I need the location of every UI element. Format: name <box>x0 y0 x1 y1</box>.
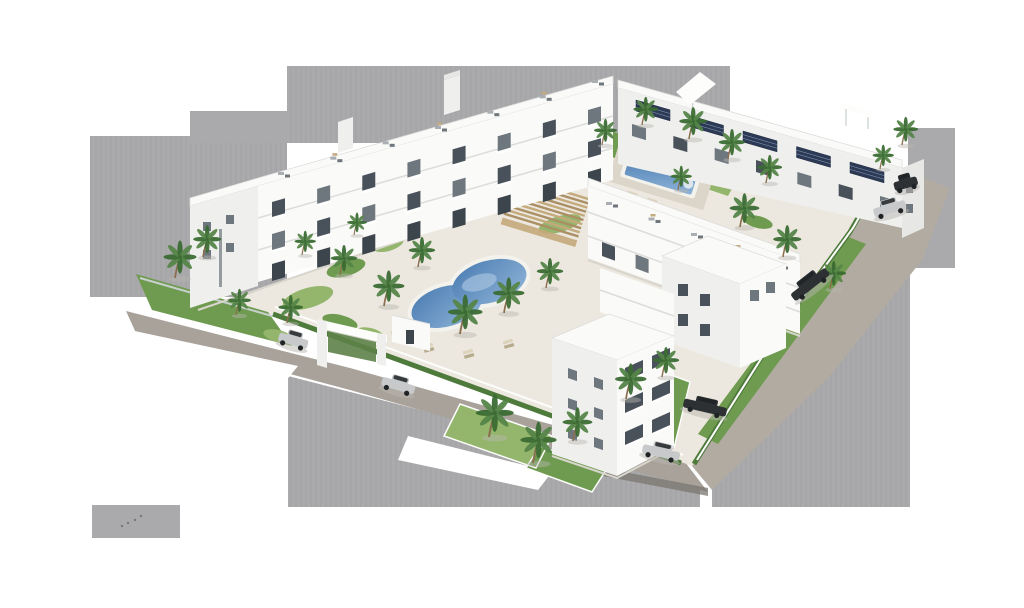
palm-shadow <box>283 322 300 327</box>
roof-furniture <box>332 153 337 156</box>
roof-furniture <box>285 175 290 178</box>
roof-furniture <box>613 205 618 208</box>
palm-shadow <box>541 287 559 292</box>
palm-crown <box>178 255 182 259</box>
roof-furniture <box>337 159 342 162</box>
facade <box>444 75 460 115</box>
palm-shadow <box>482 435 507 442</box>
roof-furniture <box>606 202 612 205</box>
palm-crown <box>604 129 607 132</box>
window <box>766 282 775 293</box>
window <box>226 243 234 252</box>
palm-shadow <box>378 304 399 310</box>
palm-shadow <box>350 234 363 238</box>
facade <box>317 319 327 368</box>
roof-furniture <box>691 233 697 236</box>
palm-shadow <box>674 189 688 193</box>
roof-furniture <box>435 126 441 129</box>
roof-furniture <box>330 157 336 160</box>
palm-crown <box>343 257 346 260</box>
palm-shadow <box>413 266 431 271</box>
palm-crown <box>904 128 907 131</box>
palm-crown <box>421 249 424 252</box>
palm-crown <box>768 166 771 169</box>
palm-crown <box>206 238 209 241</box>
palm-shadow <box>454 332 477 338</box>
palm-shadow <box>898 144 915 149</box>
roof-furniture <box>540 95 546 98</box>
palm-shadow <box>598 144 613 148</box>
facade <box>552 338 617 476</box>
palm-crown <box>238 299 241 302</box>
palm-shadow <box>762 182 779 187</box>
facade <box>902 159 924 238</box>
gray-patch-bottom-left-small <box>92 505 180 538</box>
window <box>700 324 710 336</box>
palm-crown <box>743 206 746 209</box>
palm-crown <box>537 438 541 442</box>
roof-furniture <box>278 172 284 175</box>
tiny-mark <box>127 522 129 524</box>
palm-crown <box>644 108 647 111</box>
palm-crown <box>493 411 497 415</box>
palm-shadow <box>684 137 703 142</box>
palm-shadow <box>657 376 675 381</box>
palm-shadow <box>723 158 741 163</box>
facade <box>377 333 386 366</box>
roof-furniture <box>437 123 442 126</box>
palm-shadow <box>169 276 191 282</box>
window <box>678 284 688 296</box>
tiny-mark <box>121 525 123 527</box>
palm-shadow <box>198 255 217 260</box>
roof-furniture <box>592 80 598 83</box>
roof-furniture <box>494 113 499 116</box>
palm-shadow <box>778 255 797 260</box>
palm-shadow <box>498 311 519 317</box>
palm-shadow <box>298 254 312 258</box>
facade <box>338 117 353 153</box>
roof-furniture <box>651 214 656 217</box>
roof-furniture <box>698 236 703 239</box>
palm-crown <box>289 306 292 309</box>
palm-shadow <box>876 168 890 172</box>
tiny-mark <box>134 519 136 521</box>
palm-crown <box>387 284 390 287</box>
roof-furniture <box>542 92 547 95</box>
gray-patch-top-left-strip <box>190 111 287 143</box>
roof-furniture <box>547 98 552 101</box>
window <box>700 294 710 306</box>
palm-crown <box>507 291 510 294</box>
palm-shadow <box>735 225 755 230</box>
property-render-figure <box>40 16 1024 592</box>
window <box>226 215 234 224</box>
roof-furniture <box>649 218 655 221</box>
roof-furniture <box>390 144 395 147</box>
palm-shadow <box>568 439 588 444</box>
roof-furniture <box>442 129 447 132</box>
palm-shadow <box>638 124 655 129</box>
roof-furniture <box>599 83 604 86</box>
window <box>406 330 414 344</box>
palm-crown <box>304 240 306 242</box>
roof-furniture <box>487 111 493 114</box>
palm-crown <box>692 120 695 123</box>
palm-crown <box>549 270 552 273</box>
window <box>750 290 759 301</box>
palm-crown <box>832 272 835 275</box>
palm-crown <box>576 420 579 423</box>
palm-shadow <box>826 288 843 293</box>
palm-crown <box>665 359 668 362</box>
window <box>678 314 688 326</box>
tiny-mark <box>140 515 142 517</box>
palm-shadow <box>335 274 353 279</box>
palm-shadow <box>232 314 247 318</box>
palm-shadow <box>620 397 641 403</box>
palm-crown <box>680 175 682 177</box>
palm-crown <box>463 310 467 314</box>
aerial-3d-render <box>40 16 1024 592</box>
palm-crown <box>356 221 358 223</box>
palm-crown <box>786 238 789 241</box>
palm-crown <box>629 377 632 380</box>
roof-furniture <box>656 220 661 223</box>
palm-crown <box>882 154 884 156</box>
palm-shadow <box>526 461 550 468</box>
palm-crown <box>731 141 734 144</box>
roof-furniture <box>383 141 389 144</box>
